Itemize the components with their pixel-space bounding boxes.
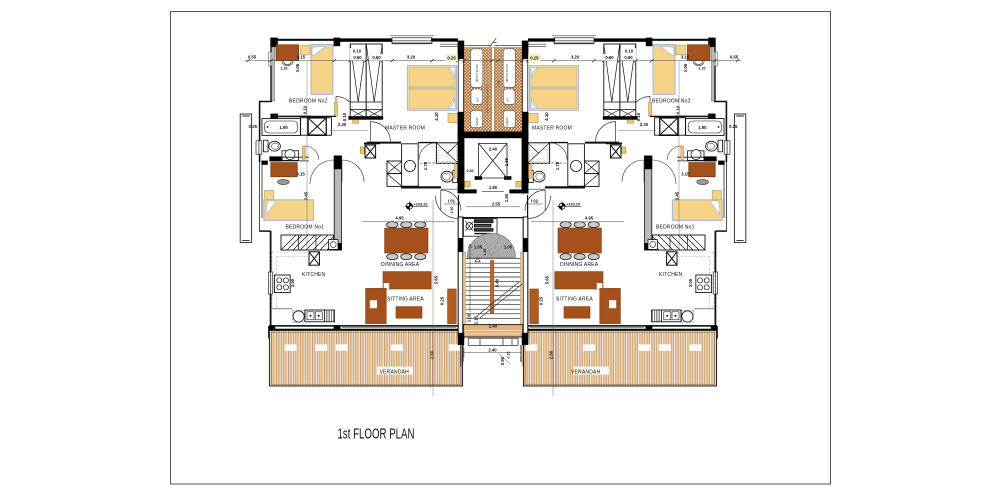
svg-text:3.45: 3.45: [304, 191, 309, 200]
svg-text:5.40: 5.40: [495, 278, 500, 287]
svg-text:0.25: 0.25: [249, 124, 258, 129]
svg-text:5.65: 5.65: [544, 275, 549, 284]
svg-text:0.60: 0.60: [353, 55, 362, 60]
svg-text:SITTING AREA: SITTING AREA: [387, 297, 424, 303]
svg-text:0.55: 0.55: [730, 55, 739, 60]
svg-text:5.65: 5.65: [434, 275, 439, 284]
svg-text:0.60: 0.60: [605, 55, 614, 60]
svg-text:3.15: 3.15: [681, 55, 690, 60]
svg-text:i 02: i 02: [531, 198, 539, 203]
svg-text:3.00: 3.00: [688, 278, 693, 287]
svg-text:SITTING AREA: SITTING AREA: [556, 297, 593, 303]
svg-text:1.90: 1.90: [698, 125, 707, 130]
svg-text:0.90: 0.90: [500, 356, 505, 365]
svg-text:0.10: 0.10: [625, 48, 634, 53]
svg-text:4.95: 4.95: [585, 216, 594, 221]
svg-text:ΑΚΑΛΥΠΤΟΣ ΧΩΡΟΣ: ΑΚΑΛΥΠΤΟΣ ΧΩΡΟΣ: [485, 84, 489, 113]
svg-text:2.55: 2.55: [492, 202, 501, 207]
svg-text:1st FLOOR PLAN: 1st FLOOR PLAN: [338, 426, 415, 443]
svg-text:3.20: 3.20: [571, 55, 580, 60]
svg-text:0.10: 0.10: [636, 112, 641, 121]
svg-text:0.10: 0.10: [353, 48, 362, 53]
svg-text:2.30: 2.30: [338, 122, 347, 127]
svg-text:3.15: 3.15: [681, 172, 690, 177]
svg-text:I 01: I 01: [448, 198, 456, 203]
svg-text:1.20: 1.20: [281, 66, 288, 70]
svg-text:0.10: 0.10: [675, 105, 680, 114]
svg-text:3.06: 3.06: [683, 63, 688, 72]
svg-text:1.78: 1.78: [423, 161, 428, 170]
svg-text:3.45: 3.45: [675, 191, 680, 200]
svg-text:0.25: 0.25: [530, 56, 539, 61]
svg-text:3.20: 3.20: [407, 55, 416, 60]
svg-text:1.65: 1.65: [504, 157, 509, 166]
svg-text:DINNING AREA: DINNING AREA: [560, 262, 599, 268]
svg-text:Δ/Υ: Δ/Υ: [475, 97, 479, 102]
svg-text:1.93: 1.93: [496, 80, 500, 87]
svg-text:0.25: 0.25: [440, 296, 445, 305]
svg-text:1.45: 1.45: [483, 249, 487, 256]
svg-text:3.06: 3.06: [295, 63, 300, 72]
svg-text:1.50: 1.50: [504, 193, 509, 202]
svg-text:0.25: 0.25: [729, 124, 738, 129]
svg-text:BEDROOM No1: BEDROOM No1: [656, 225, 695, 231]
svg-text:+103.20: +103.20: [566, 202, 580, 206]
svg-text:MASTER ROOM: MASTER ROOM: [385, 125, 425, 131]
svg-text:0.60: 0.60: [624, 55, 633, 60]
svg-text:1.05: 1.05: [467, 313, 472, 322]
svg-text:0.10: 0.10: [342, 112, 347, 121]
svg-text:1.50: 1.50: [450, 207, 454, 214]
svg-text:0.25: 0.25: [538, 296, 543, 305]
svg-text:+103.20: +103.20: [414, 202, 428, 206]
svg-text:0.60: 0.60: [372, 55, 381, 60]
svg-text:Δ/Υ: Δ/Υ: [505, 97, 509, 102]
svg-text:1.78: 1.78: [555, 161, 560, 170]
svg-text:0.25: 0.25: [507, 351, 511, 358]
svg-text:3.15: 3.15: [297, 55, 306, 60]
svg-text:1.05: 1.05: [504, 244, 513, 249]
svg-text:SUMP: SUMP: [475, 117, 479, 126]
svg-text:4.10: 4.10: [544, 112, 549, 121]
svg-text:2.30: 2.30: [640, 122, 649, 127]
svg-text:2.40: 2.40: [489, 146, 498, 151]
svg-text:4.95: 4.95: [395, 216, 404, 221]
svg-text:BEDROOM No1: BEDROOM No1: [286, 225, 325, 231]
svg-text:DINNING AREA: DINNING AREA: [381, 262, 420, 268]
svg-text:ΦΩΤΑΓΩΓΟΣ: ΦΩΤΑΓΩΓΟΣ: [505, 64, 509, 82]
svg-text:2.40: 2.40: [488, 347, 497, 352]
svg-text:KITCHEN: KITCHEN: [659, 272, 683, 278]
svg-text:1.90: 1.90: [279, 125, 288, 130]
svg-text:0.55: 0.55: [248, 55, 257, 60]
svg-text:BEDROOM No2: BEDROOM No2: [652, 99, 691, 105]
svg-text:3.00: 3.00: [290, 278, 295, 287]
svg-text:3.15: 3.15: [296, 172, 305, 177]
svg-text:2.50: 2.50: [430, 350, 435, 359]
svg-text:0.30: 0.30: [467, 169, 474, 173]
svg-text:ΦΩΤΑΓΩΓΟΣ: ΦΩΤΑΓΩΓΟΣ: [475, 64, 479, 82]
svg-text:MASTER ROOM: MASTER ROOM: [532, 125, 572, 131]
svg-text:4.10: 4.10: [434, 112, 439, 121]
svg-text:1.05: 1.05: [474, 244, 483, 249]
svg-text:KITCHEN: KITCHEN: [302, 272, 326, 278]
svg-text:SUMP: SUMP: [505, 117, 509, 126]
svg-text:1.15: 1.15: [473, 315, 478, 324]
svg-text:2.50: 2.50: [548, 350, 553, 359]
svg-text:VERANDAH: VERANDAH: [380, 369, 410, 375]
svg-text:2.40: 2.40: [489, 324, 498, 329]
svg-text:1.20: 1.20: [699, 66, 706, 70]
svg-text:VERANDAH: VERANDAH: [571, 369, 601, 375]
svg-text:BEDROOM No2: BEDROOM No2: [289, 99, 328, 105]
svg-text:0.25: 0.25: [447, 56, 456, 61]
svg-text:1.80: 1.80: [489, 185, 498, 190]
